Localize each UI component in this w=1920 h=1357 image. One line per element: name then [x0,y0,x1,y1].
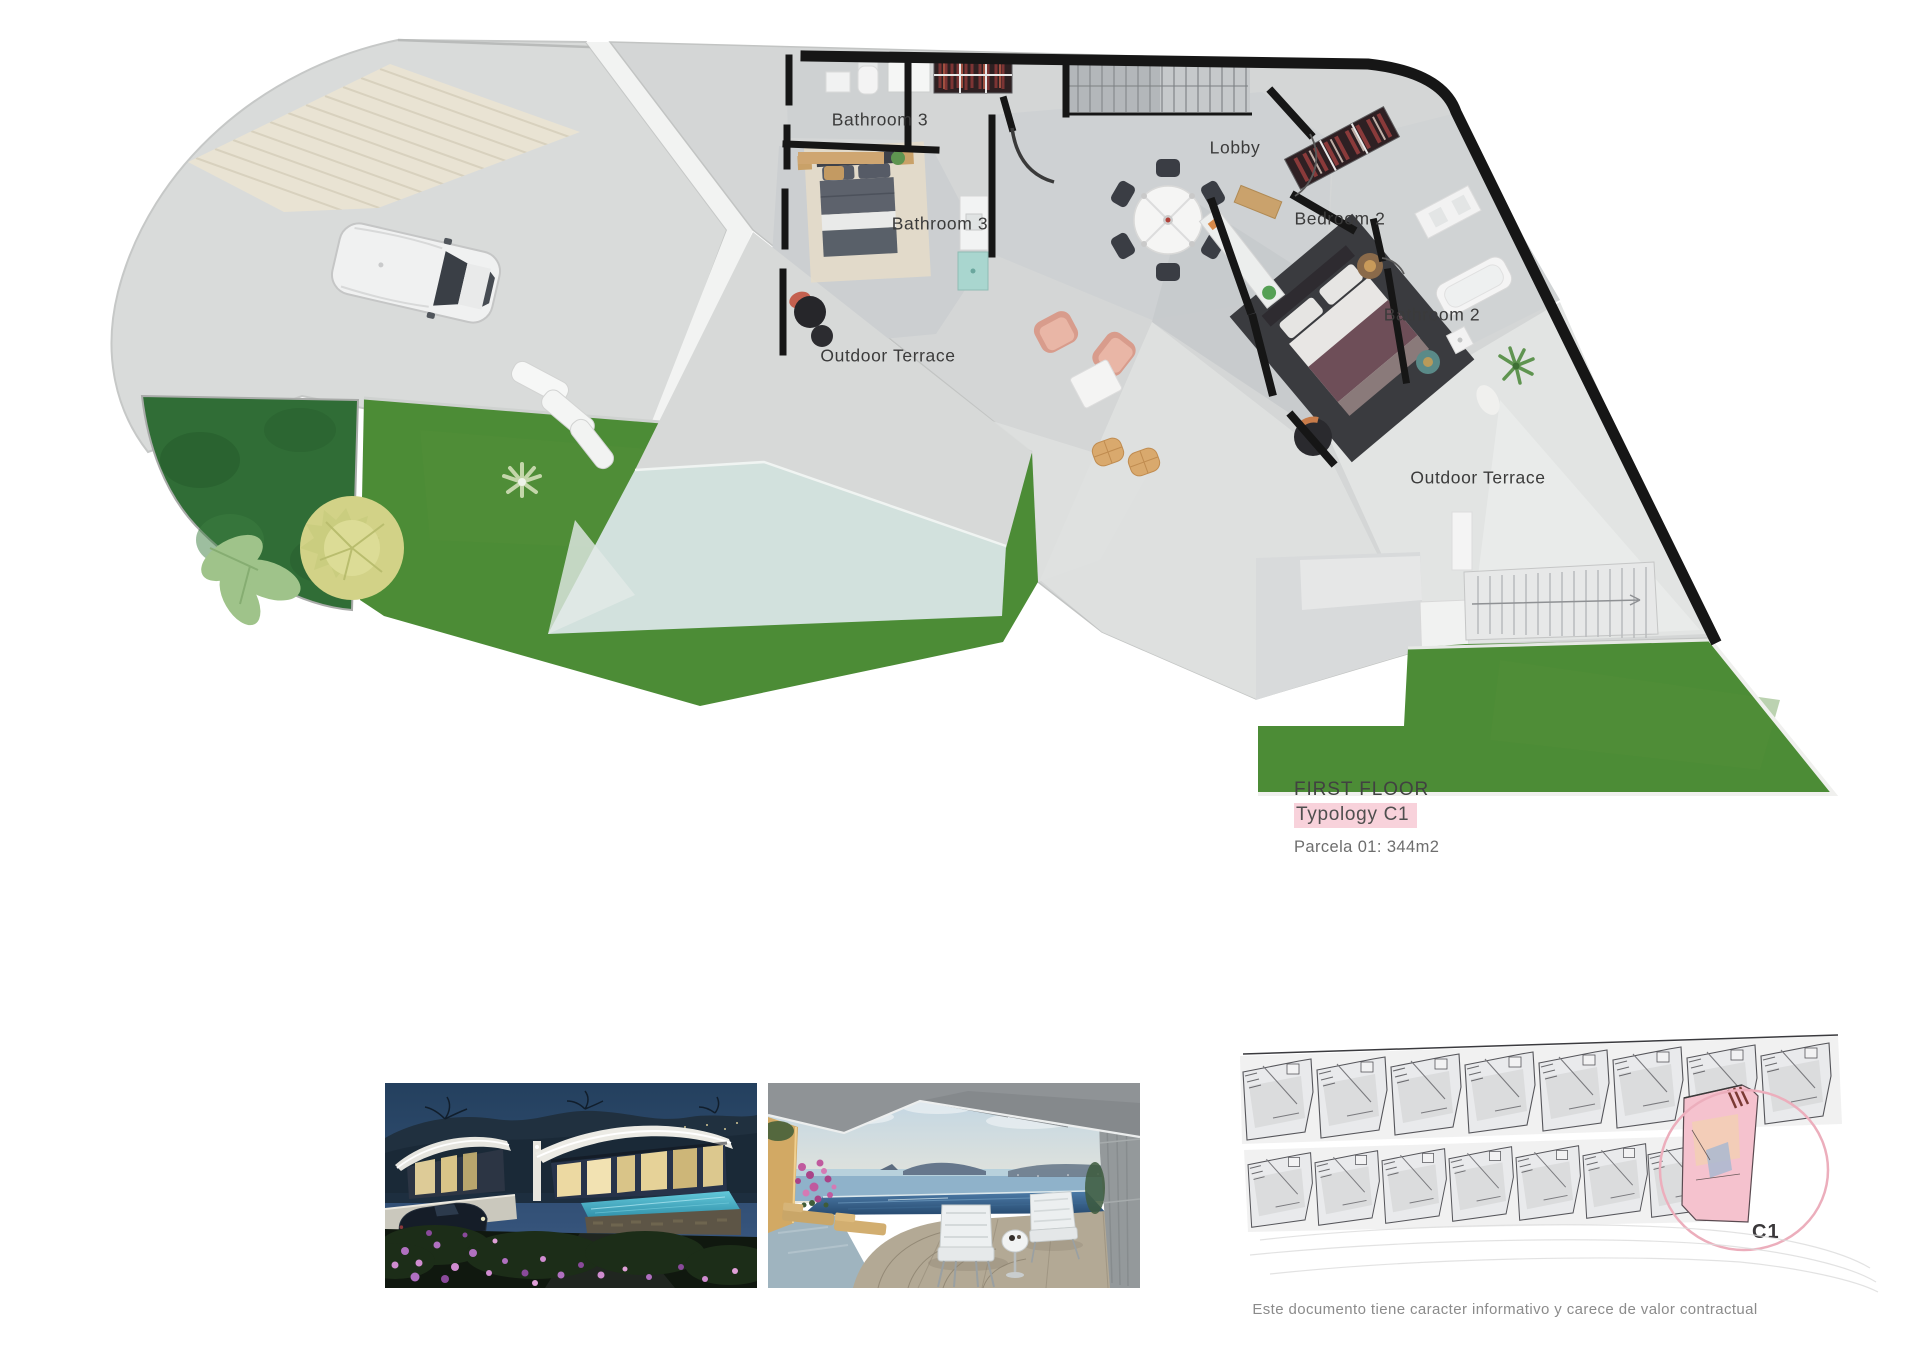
brochure-page: Bathroom 3 Bathroom 3 Lobby Bedroom 2 Ba… [0,0,1920,1357]
floor-plan-illustration [0,0,1920,910]
room-label-lobby: Lobby [1210,138,1261,159]
room-label-terrace-left: Outdoor Terrace [820,346,955,367]
title-block: FIRST FLOOR Typology C1 Parcela 01: 344m… [1294,779,1439,857]
site-unit-label: C1 [1752,1221,1780,1243]
room-label-bathroom3-mid: Bathroom 3 [892,214,988,235]
room-label-terrace-right: Outdoor Terrace [1410,468,1545,489]
site-plan: C1 [1240,1030,1880,1300]
parcel-info: Parcela 01: 344m2 [1294,838,1439,857]
typology-badge: Typology C1 [1294,803,1417,828]
site-contours [1250,1225,1878,1292]
photo-villa-exterior [385,1083,757,1288]
tree [300,496,404,600]
room-label-bathroom3-top: Bathroom 3 [832,110,928,131]
photo-terrace-view [768,1083,1140,1288]
bathroom3-mid-fixtures [958,196,988,290]
disclaimer-text: Este documento tiene caracter informativ… [1240,1301,1770,1318]
garden-stairs [1464,562,1658,640]
room-label-bedroom2: Bedroom 2 [1294,209,1385,230]
room-label-bathroom2: Bathroom 2 [1384,305,1480,326]
floor-title: FIRST FLOOR [1294,779,1439,801]
